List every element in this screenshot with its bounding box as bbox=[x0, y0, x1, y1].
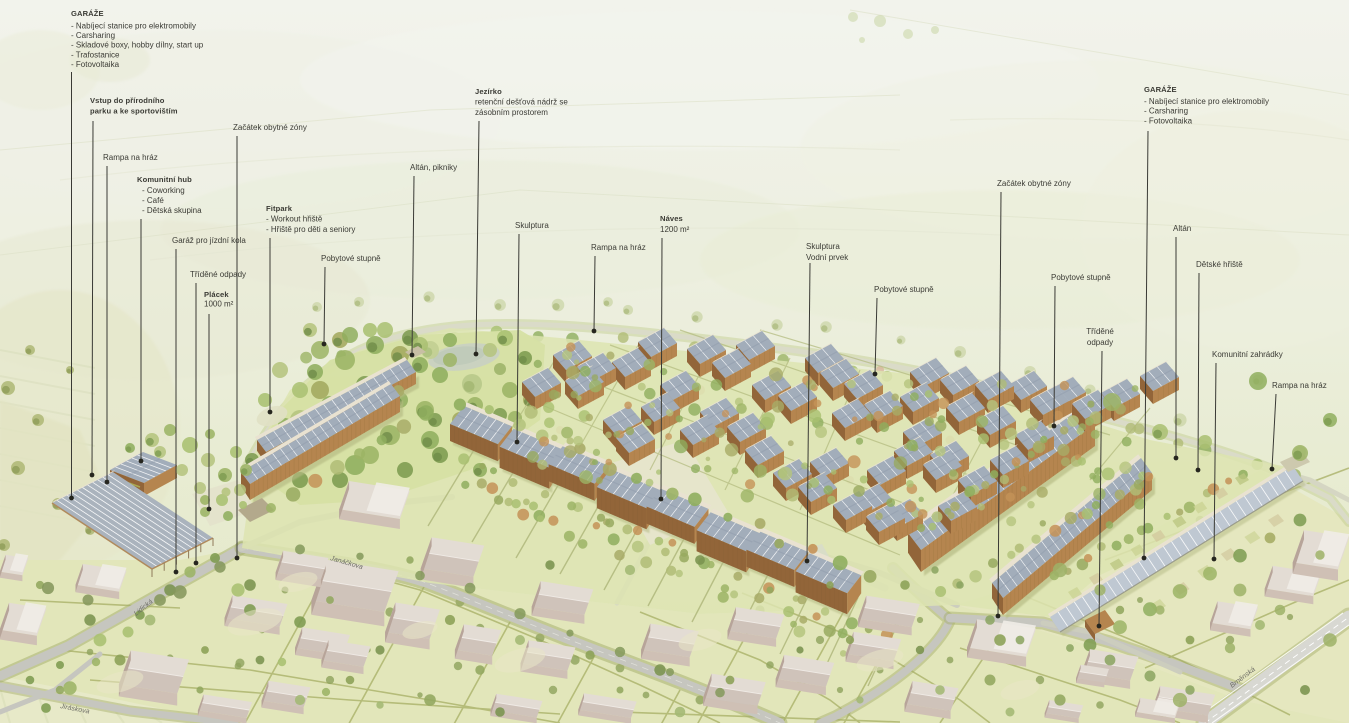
svg-text:- Hřiště pro děti a seniory: - Hřiště pro děti a seniory bbox=[266, 225, 355, 234]
svg-text:- Carsharing: - Carsharing bbox=[71, 31, 115, 40]
svg-text:Rampa na hráz: Rampa na hráz bbox=[103, 153, 158, 162]
svg-text:odpady: odpady bbox=[1087, 338, 1113, 347]
svg-text:Pobytové stupně: Pobytové stupně bbox=[321, 254, 381, 263]
svg-text:Skulptura: Skulptura bbox=[806, 242, 840, 251]
svg-text:- Trafostanice: - Trafostanice bbox=[71, 50, 120, 59]
svg-text:- Fotovoltaika: - Fotovoltaika bbox=[71, 60, 120, 69]
svg-text:GARÁŽE: GARÁŽE bbox=[71, 9, 104, 18]
svg-text:Tříděné: Tříděné bbox=[1086, 327, 1114, 336]
svg-text:Vstup do přírodního: Vstup do přírodního bbox=[90, 96, 165, 105]
svg-text:Skulptura: Skulptura bbox=[515, 221, 549, 230]
svg-text:- Café: - Café bbox=[142, 196, 164, 205]
svg-text:- Nabíjecí stanice pro elektro: - Nabíjecí stanice pro elektromobily bbox=[1144, 97, 1269, 106]
svg-text:GARÁŽE: GARÁŽE bbox=[1144, 85, 1177, 94]
svg-text:Vodní prvek: Vodní prvek bbox=[806, 253, 849, 262]
svg-text:Garáž pro jízdní kola: Garáž pro jízdní kola bbox=[172, 236, 246, 245]
svg-text:Rampa na hráz: Rampa na hráz bbox=[591, 243, 646, 252]
svg-text:- Fotovoltaika: - Fotovoltaika bbox=[1144, 116, 1193, 125]
svg-text:- Coworking: - Coworking bbox=[142, 186, 185, 195]
svg-text:Jezírko: Jezírko bbox=[475, 87, 502, 96]
svg-text:- Nabíjecí stanice pro elektro: - Nabíjecí stanice pro elektromobily bbox=[71, 21, 196, 30]
svg-text:retenční dešťová nádrž se: retenční dešťová nádrž se bbox=[475, 98, 568, 107]
svg-text:1200 m²: 1200 m² bbox=[660, 225, 690, 234]
svg-text:Komunitní hub: Komunitní hub bbox=[137, 175, 192, 184]
svg-text:- Carsharing: - Carsharing bbox=[1144, 107, 1188, 116]
svg-text:parku a ke sportovištím: parku a ke sportovištím bbox=[90, 107, 178, 116]
svg-text:- Skladové boxy, hobby dílny,: - Skladové boxy, hobby dílny, start up bbox=[71, 41, 204, 50]
svg-text:Náves: Náves bbox=[660, 214, 683, 223]
svg-text:Tříděné odpady: Tříděné odpady bbox=[190, 270, 246, 279]
svg-text:Pobytové stupně: Pobytové stupně bbox=[874, 285, 934, 294]
svg-text:Altán: Altán bbox=[1173, 224, 1191, 233]
svg-text:Plácek: Plácek bbox=[204, 290, 229, 299]
svg-text:Rampa na hráz: Rampa na hráz bbox=[1272, 381, 1327, 390]
svg-text:Začátek obytné zóny: Začátek obytné zóny bbox=[233, 123, 307, 132]
svg-text:Komunitní zahrádky: Komunitní zahrádky bbox=[1212, 350, 1283, 359]
svg-text:zásobním prostorem: zásobním prostorem bbox=[475, 108, 548, 117]
svg-text:Altán, pikniky: Altán, pikniky bbox=[410, 163, 457, 172]
svg-text:Dětské hřiště: Dětské hřiště bbox=[1196, 260, 1243, 269]
svg-text:Pobytové stupně: Pobytové stupně bbox=[1051, 273, 1111, 282]
svg-text:Začátek obytné zóny: Začátek obytné zóny bbox=[997, 179, 1071, 188]
svg-text:- Dětská skupina: - Dětská skupina bbox=[142, 206, 202, 215]
svg-text:- Workout hřiště: - Workout hřiště bbox=[266, 215, 323, 224]
svg-text:Fitpark: Fitpark bbox=[266, 204, 293, 213]
svg-text:1000 m²: 1000 m² bbox=[204, 300, 234, 309]
